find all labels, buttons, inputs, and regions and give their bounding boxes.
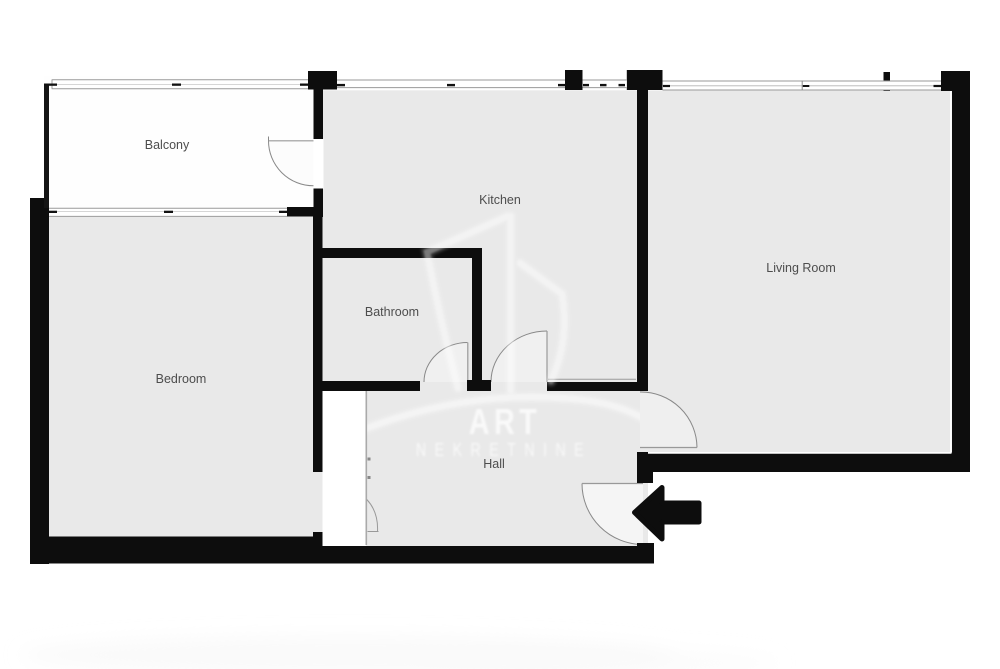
svg-text:Living Room: Living Room <box>766 261 835 275</box>
svg-text:ART: ART <box>469 401 541 442</box>
svg-text:Hall: Hall <box>483 457 505 471</box>
svg-text:Bedroom: Bedroom <box>156 372 207 386</box>
svg-text:Balcony: Balcony <box>145 138 190 152</box>
svg-text:Bathroom: Bathroom <box>365 305 419 319</box>
svg-text:Kitchen: Kitchen <box>479 193 521 207</box>
